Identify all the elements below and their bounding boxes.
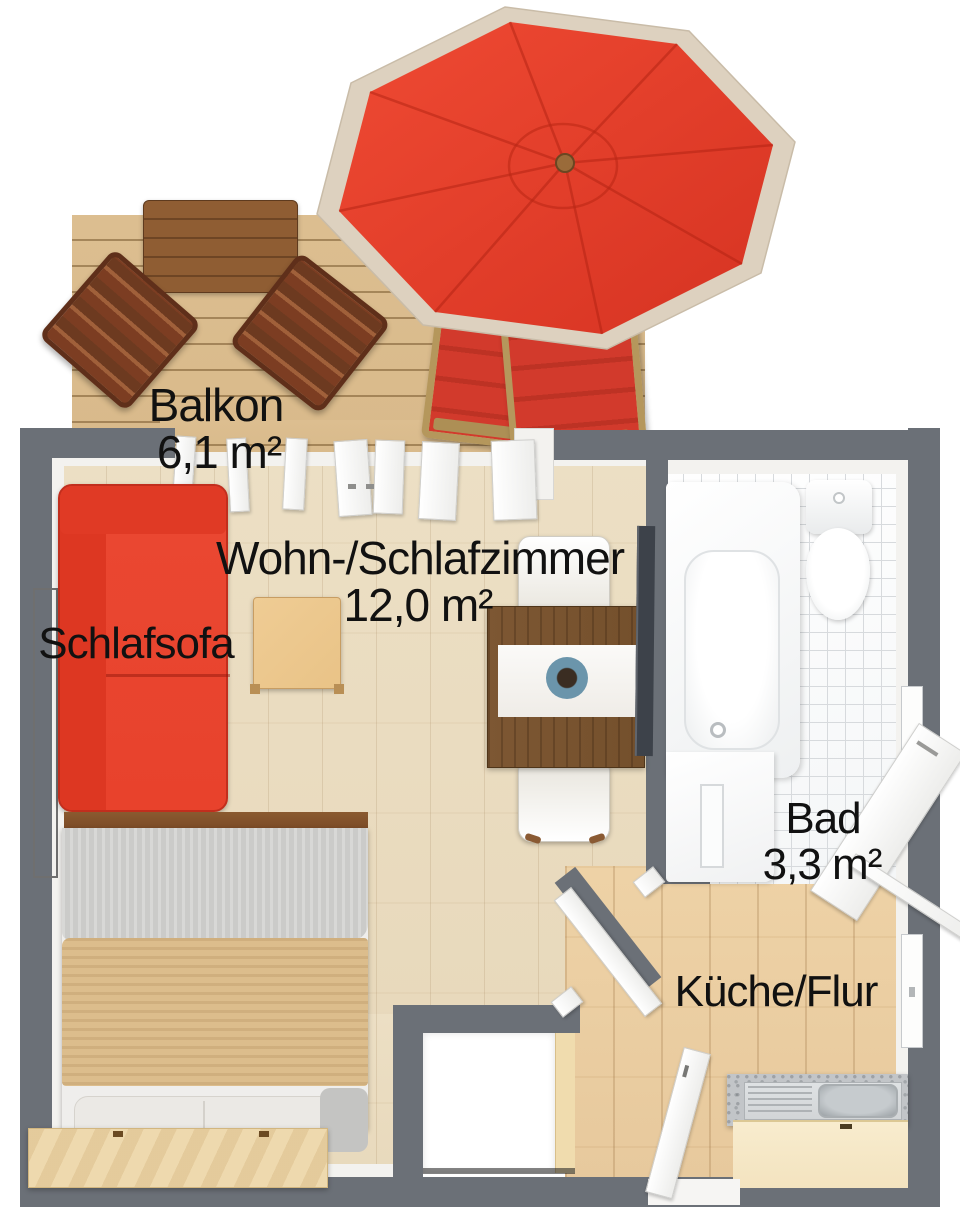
door-handle-icon — [348, 484, 356, 489]
bathtub — [666, 482, 800, 778]
plant-centerpiece — [546, 657, 588, 699]
vanity-inset — [700, 784, 724, 868]
table-leg — [334, 684, 344, 694]
room-label-kueche: Küche/Flur — [675, 970, 878, 1014]
room-area-balkon: 6,1 m² — [157, 429, 281, 475]
balcony-door-leaf — [418, 441, 460, 521]
balcony-door-leaf — [333, 439, 372, 517]
sofa-seat-seam — [106, 674, 230, 677]
kitchen-cabinet-front — [733, 1120, 908, 1188]
room-label-balkon: Balkon — [149, 382, 284, 428]
bathroom-vanity — [666, 752, 774, 882]
headboard-handle — [259, 1131, 269, 1137]
room-area-bad: 3,3 m² — [763, 843, 882, 887]
dining-table — [487, 606, 645, 768]
wall-niche-kitchen — [901, 934, 923, 1048]
toilet-flush-button-icon — [833, 492, 845, 504]
bathtub-drain-icon — [710, 722, 726, 738]
counter-drainer — [748, 1086, 812, 1116]
closet-wall-top — [393, 1005, 580, 1033]
parasol-umbrella — [0, 0, 960, 430]
cabinet-keyhole-icon — [840, 1124, 852, 1129]
toilet-tank — [806, 480, 872, 534]
niche-handle-icon — [909, 987, 915, 997]
door-handle-icon — [916, 740, 938, 756]
bed-headboard — [28, 1128, 328, 1188]
room-area-wohnzimmer: 12,0 m² — [344, 582, 493, 628]
closet-door — [555, 1033, 575, 1173]
wall-top-right — [540, 430, 940, 460]
sofa-arm-cushion — [60, 486, 226, 534]
tv-panel — [635, 526, 655, 756]
dining-chair-bottom — [518, 764, 610, 842]
balcony-door-leaf — [282, 437, 308, 510]
room-label-wohnzimmer: Wohn-/Schlafzimmer — [216, 535, 624, 581]
coffee-table — [253, 597, 341, 689]
balcony-door-leaf — [491, 439, 538, 520]
balcony-door-leaf — [373, 439, 406, 514]
kitchen-counter — [727, 1074, 908, 1126]
closet-shadow — [423, 1168, 575, 1174]
bed-blanket-tan — [62, 938, 368, 1086]
room-label-bad: Bad — [785, 797, 860, 841]
bathtub-basin — [684, 550, 780, 750]
headboard-handle — [113, 1131, 123, 1137]
counter-sink — [818, 1084, 898, 1118]
label-schlafsofa: Schlafsofa — [38, 622, 233, 666]
door-handle-icon — [682, 1065, 689, 1078]
floor-plan: Balkon 6,1 m² Wohn-/Schlafzimmer 12,0 m²… — [0, 0, 960, 1214]
closet-interior — [423, 1033, 555, 1173]
table-leg — [250, 684, 260, 694]
bed-blanket-gray — [62, 828, 368, 940]
door-handle-icon — [366, 484, 374, 489]
